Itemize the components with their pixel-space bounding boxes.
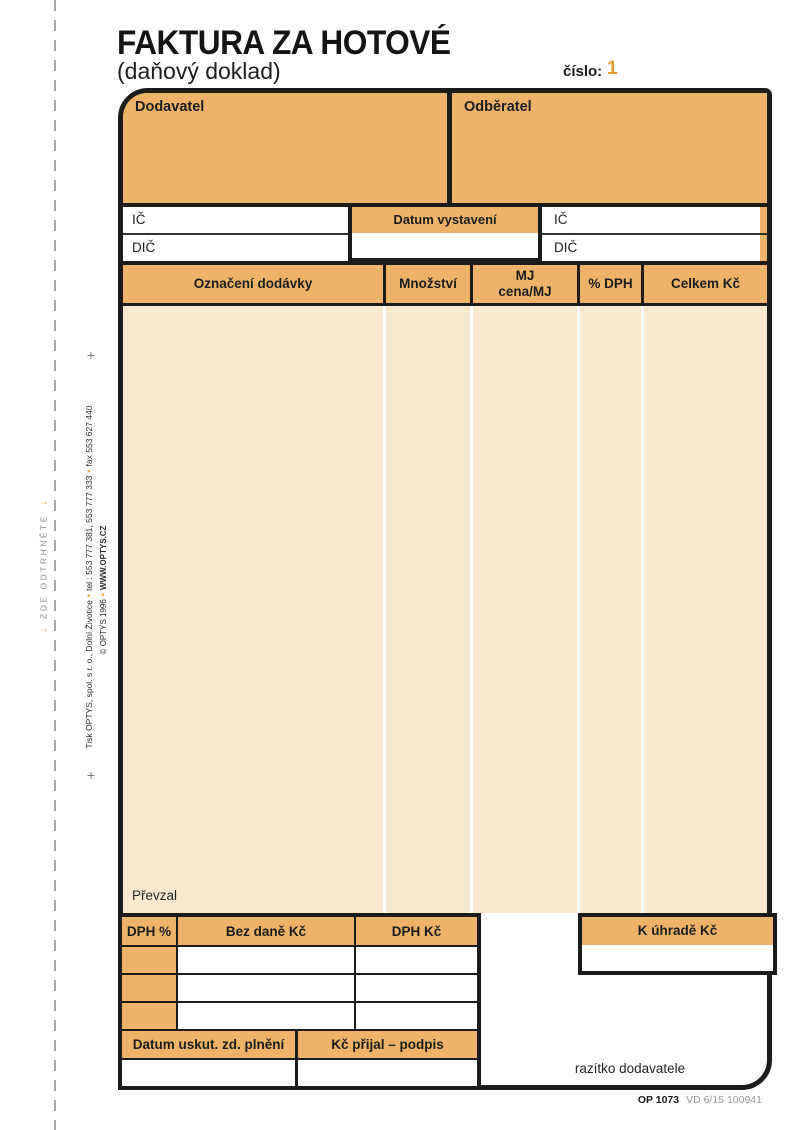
bottom-value-row — [122, 1060, 477, 1086]
items-table-body: Převzal — [123, 306, 767, 913]
registration-plus-mark: + — [84, 768, 98, 782]
supplier-ic-label: IČ — [132, 207, 146, 233]
customer-label: Odběratel — [464, 99, 532, 115]
website-text: WWW.OPTYS.CZ — [99, 526, 108, 590]
total-due-label: K úhradě Kč — [582, 917, 773, 945]
registration-plus-mark: + — [84, 348, 98, 362]
customer-dic-label: DIČ — [554, 235, 577, 261]
vat-rate-cell — [122, 975, 178, 1001]
col-quantity: Množství — [386, 265, 473, 303]
vat-amount-cell — [356, 947, 477, 973]
invoice-form-page: ↓ ZDE ODTRHNĚTE ↓ Tisk OPTYS, spol. s r.… — [0, 0, 800, 1130]
vat-header-row: DPH % Bez daně Kč DPH Kč — [122, 917, 477, 947]
bullet-icon: • — [84, 594, 94, 597]
vat-data-row — [122, 1003, 477, 1031]
supplier-label: Dodavatel — [135, 99, 204, 115]
bullet-icon: • — [84, 469, 94, 472]
invoice-number-value: 1 — [607, 58, 618, 80]
down-arrow-icon: ↓ — [39, 501, 49, 506]
page-subtitle: (daňový doklad) — [117, 58, 281, 85]
party-divider — [447, 93, 452, 203]
column-separator — [470, 306, 473, 913]
vat-amount-cell — [356, 1003, 477, 1029]
col-vat-rate: % DPH — [580, 265, 644, 303]
invoice-form: Dodavatel Odběratel IČ DIČ IČ DIČ Datum … — [118, 88, 772, 1090]
form-code: OP 1073 — [638, 1094, 679, 1106]
vat-data-row — [122, 947, 477, 975]
vat-base-cell — [178, 1003, 356, 1029]
items-table-header: Označení dodávky Množství MJ cena/MJ % D… — [123, 265, 767, 306]
printer-info-part: Tisk OPTYS, spol. s r. o., Dolní Životic… — [84, 600, 94, 748]
column-separator — [641, 306, 644, 913]
col-vat-label: % DPH — [588, 276, 632, 292]
issue-date-label: Datum vystavení — [352, 207, 538, 233]
form-meta: VD 6/15 100941 — [686, 1094, 762, 1106]
vat-base-cell — [178, 947, 356, 973]
total-due-box: K úhradě Kč — [578, 913, 777, 975]
vat-rate-cell — [122, 947, 178, 973]
printer-info-line: Tisk OPTYS, spol. s r. o., Dolní Životic… — [83, 387, 95, 767]
party-boxes: Dodavatel Odběratel — [123, 93, 767, 203]
bullet-icon: • — [98, 593, 108, 596]
printer-info-part: fax 553 627 440 — [84, 405, 94, 466]
supply-date-header: Datum uskut. zd. plnění — [122, 1031, 298, 1058]
bottom-header-row: Datum uskut. zd. plnění Kč přijal – podp… — [122, 1031, 477, 1060]
vat-summary-table: DPH % Bez daně Kč DPH Kč Datum uskut. z — [118, 913, 481, 1090]
column-separator — [383, 306, 386, 913]
col-total: Celkem Kč — [644, 265, 767, 303]
form-code-footer: OP 1073VD 6/15 100941 — [520, 1094, 762, 1106]
column-separator — [577, 306, 580, 913]
supplier-stamp-label: razítko dodavatele — [505, 1061, 755, 1076]
received-sign-cell — [298, 1060, 477, 1086]
copyright-text: © OPTYS 1996 — [99, 599, 108, 654]
col-quantity-label: Množství — [399, 276, 457, 292]
col-unit-price: MJ cena/MJ — [473, 265, 580, 303]
col-designation-label: Označení dodávky — [194, 276, 313, 292]
tear-here-text: ZDE ODTRHNĚTE — [39, 514, 49, 619]
supply-date-cell — [122, 1060, 298, 1086]
received-sign-header: Kč přijal – podpis — [298, 1031, 477, 1058]
col-unit-line1: MJ — [516, 268, 535, 284]
tear-dashed-line — [54, 0, 56, 1130]
received-by-label: Převzal — [132, 888, 177, 903]
vat-data-row — [122, 975, 477, 1003]
copyright-line: © OPTYS 1996•WWW.OPTYS.CZ — [97, 515, 109, 665]
vat-base-cell — [178, 975, 356, 1001]
col-designation: Označení dodávky — [123, 265, 386, 303]
supplier-dic-label: DIČ — [132, 235, 155, 261]
vat-amount-cell — [356, 975, 477, 1001]
invoice-number-label: číslo: — [563, 63, 602, 80]
vat-rate-header: DPH % — [122, 917, 178, 945]
tear-here-label: ↓ ZDE ODTRHNĚTE ↓ — [38, 499, 51, 635]
printer-info-part: tel : 553 777 381, 553 777 333 — [84, 476, 94, 591]
col-total-label: Celkem Kč — [671, 276, 740, 292]
vat-rate-cell — [122, 1003, 178, 1029]
col-unit-line2: cena/MJ — [498, 284, 551, 300]
down-arrow-icon: ↓ — [39, 628, 49, 633]
customer-ic-label: IČ — [554, 207, 568, 233]
vat-amount-header: DPH Kč — [356, 917, 477, 945]
vat-base-header: Bez daně Kč — [178, 917, 356, 945]
issue-date-box: Datum vystavení — [348, 203, 542, 262]
